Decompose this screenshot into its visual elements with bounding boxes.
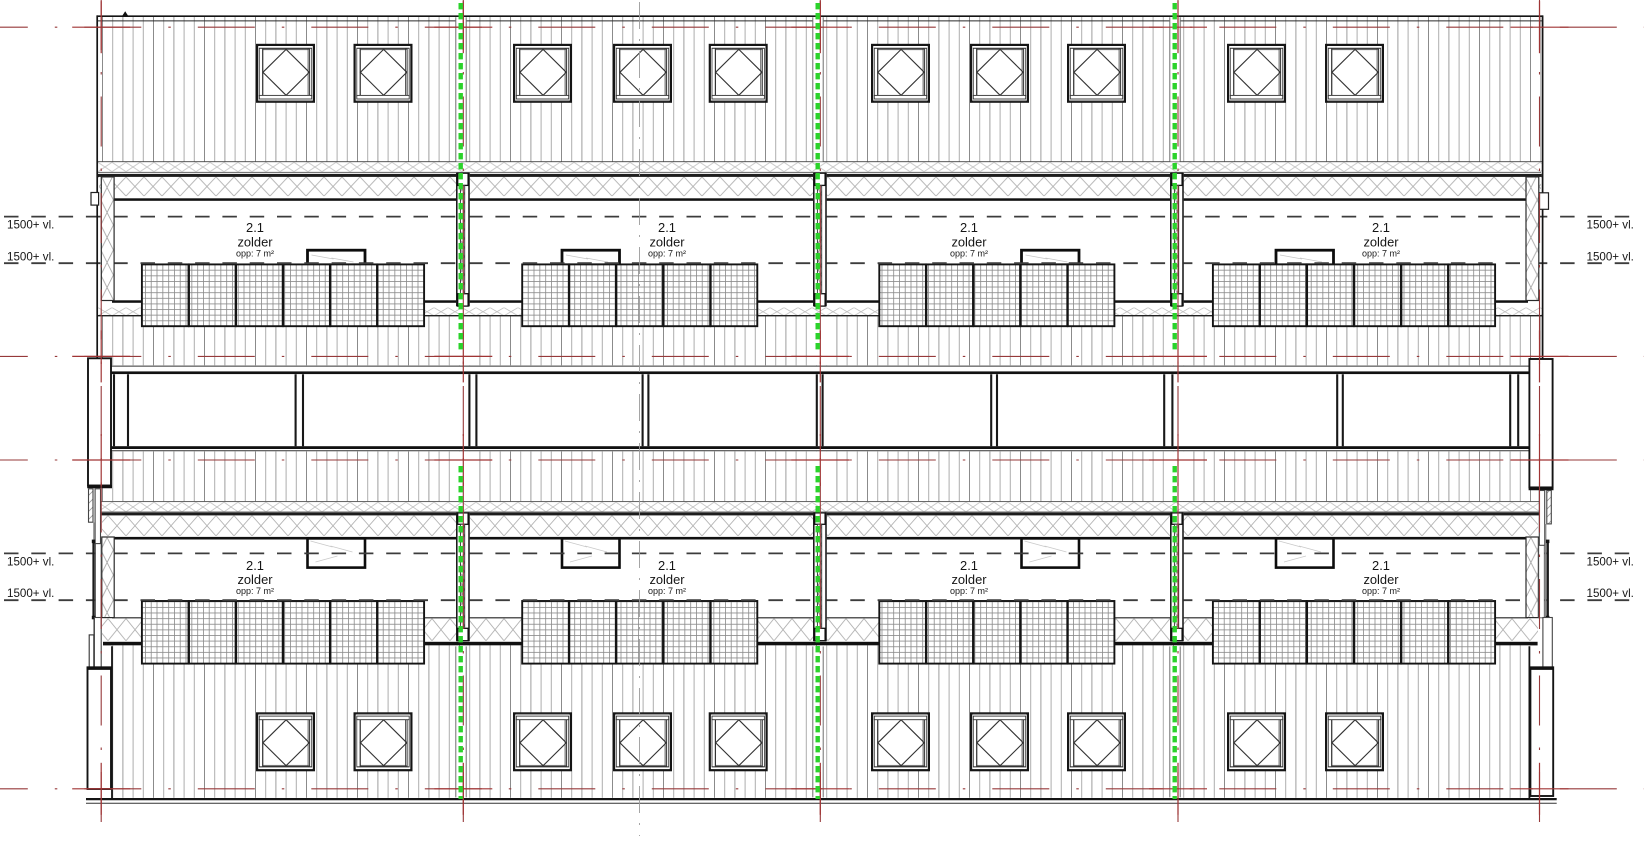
- svg-text:2.1: 2.1: [658, 220, 676, 235]
- svg-text:2.1: 2.1: [960, 220, 978, 235]
- svg-text:1500+ vl.: 1500+ vl.: [1587, 250, 1634, 263]
- svg-text:2.1: 2.1: [960, 558, 978, 573]
- svg-text:opp: 7 m²: opp: 7 m²: [1362, 586, 1400, 596]
- svg-text:zolder: zolder: [1363, 235, 1399, 250]
- svg-text:zolder: zolder: [237, 235, 273, 250]
- svg-text:opp: 7 m²: opp: 7 m²: [950, 586, 988, 596]
- svg-text:opp: 7 m²: opp: 7 m²: [1362, 249, 1400, 259]
- svg-text:1500+ vl.: 1500+ vl.: [1587, 219, 1634, 232]
- svg-text:zolder: zolder: [951, 572, 987, 587]
- svg-text:zolder: zolder: [951, 235, 987, 250]
- svg-text:opp: 7 m²: opp: 7 m²: [236, 586, 274, 596]
- svg-text:2.1: 2.1: [246, 220, 264, 235]
- svg-text:2.1: 2.1: [658, 558, 676, 573]
- svg-text:zolder: zolder: [237, 572, 273, 587]
- svg-text:2.1: 2.1: [246, 558, 264, 573]
- svg-text:opp: 7 m²: opp: 7 m²: [648, 249, 686, 259]
- svg-text:opp: 7 m²: opp: 7 m²: [950, 249, 988, 259]
- svg-text:zolder: zolder: [649, 572, 685, 587]
- svg-text:opp: 7 m²: opp: 7 m²: [236, 249, 274, 259]
- svg-text:1500+ vl.: 1500+ vl.: [7, 587, 54, 600]
- svg-text:1500+ vl.: 1500+ vl.: [7, 250, 54, 263]
- svg-text:2.1: 2.1: [1372, 558, 1390, 573]
- svg-text:2.1: 2.1: [1372, 220, 1390, 235]
- svg-text:opp: 7 m²: opp: 7 m²: [648, 586, 686, 596]
- svg-text:zolder: zolder: [1363, 572, 1399, 587]
- svg-text:1500+ vl.: 1500+ vl.: [7, 219, 54, 232]
- svg-text:zolder: zolder: [649, 235, 685, 250]
- svg-text:1500+ vl.: 1500+ vl.: [1587, 587, 1634, 600]
- svg-text:1500+ vl.: 1500+ vl.: [7, 556, 54, 569]
- svg-text:1500+ vl.: 1500+ vl.: [1587, 556, 1634, 569]
